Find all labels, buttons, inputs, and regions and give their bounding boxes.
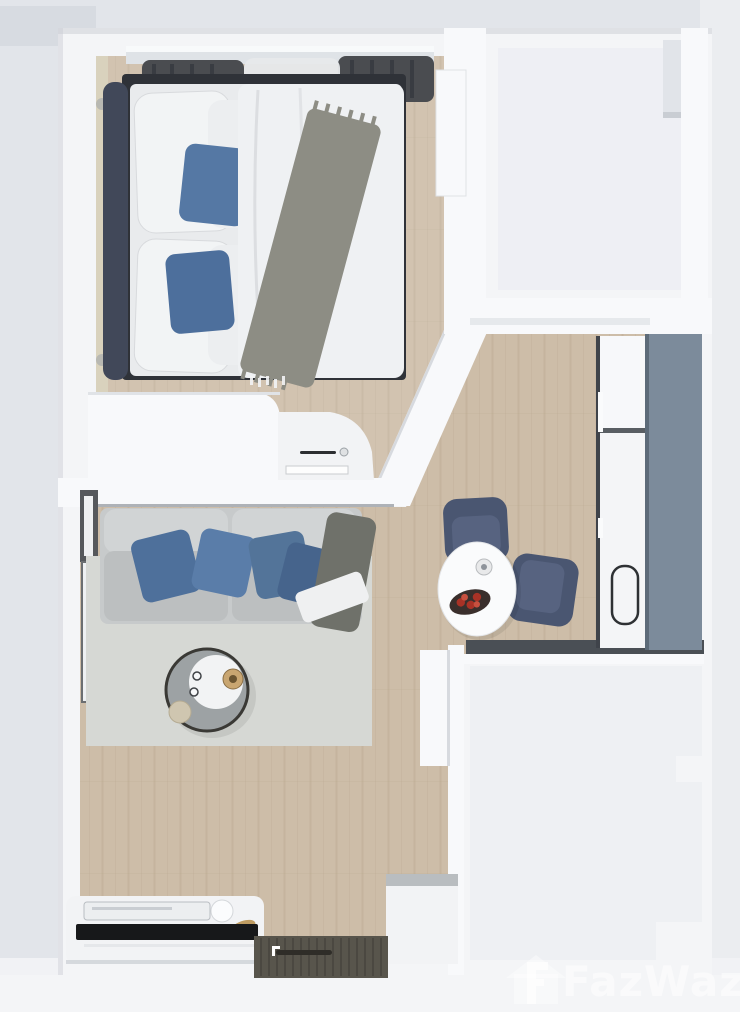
door-leaf (420, 650, 450, 766)
vanity-mirror (340, 448, 348, 456)
shoe-cabinet (386, 874, 458, 964)
dining-table (438, 542, 516, 636)
vanity-item (300, 451, 336, 454)
bathroom-floor (470, 666, 702, 960)
wardrobe (88, 392, 280, 480)
fridge-handle (598, 392, 603, 432)
kitchen-north-wall (444, 298, 712, 334)
blue-pillow (165, 249, 236, 334)
headboard (103, 82, 128, 380)
tv-console (66, 896, 264, 964)
vanity-tray (286, 466, 348, 474)
floorplan-svg: FazWaz (0, 0, 740, 1012)
fazwaz-watermark: FazWaz (506, 955, 740, 1006)
cup (169, 701, 191, 723)
bedroom-living-wall (58, 478, 394, 507)
door-handle (276, 950, 332, 955)
slate-cabinet-panel (645, 334, 702, 650)
console-tray (84, 902, 210, 920)
double-bed (103, 74, 406, 397)
tall-cabinet (436, 70, 466, 196)
gray-sofa (100, 508, 378, 634)
refrigerator (600, 336, 646, 430)
cup (211, 900, 233, 922)
fazwaz-text: FazWaz (562, 957, 740, 1006)
tv (76, 924, 258, 940)
kitchen (596, 334, 702, 650)
floorplan-image: FazWaz (0, 0, 740, 1012)
wall-column (681, 28, 708, 298)
cabinet-handle (598, 518, 603, 538)
doormat (254, 936, 388, 978)
kitchen-window-sill (470, 318, 650, 325)
balcony-empty-area (498, 28, 708, 298)
protruding-wall (663, 40, 681, 116)
bathroom (470, 666, 702, 960)
